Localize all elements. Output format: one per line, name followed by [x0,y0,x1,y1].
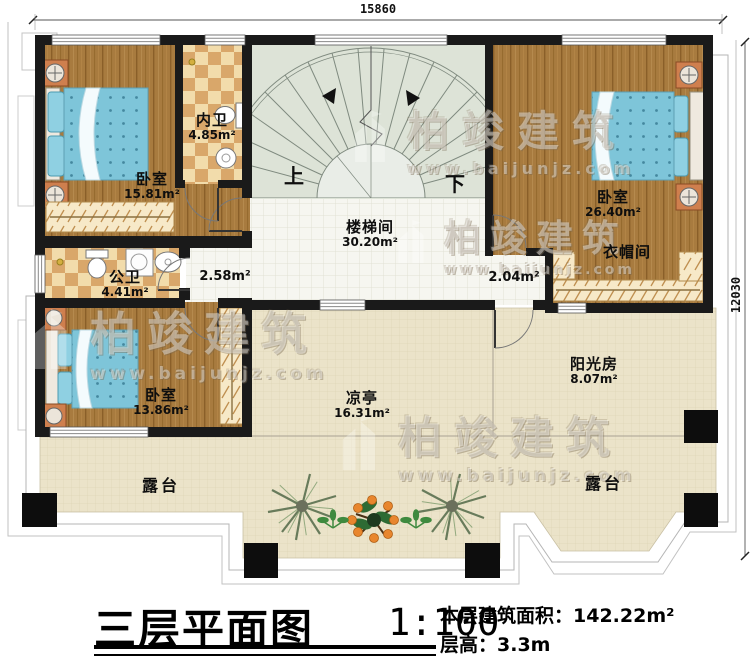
window-icon [50,427,148,437]
room-name: 楼梯间 [342,219,398,236]
room-label-bedroom-bottom-left: 卧室 13.86m² [133,387,189,417]
floor-drain-icon [57,259,63,265]
room-area: 16.31m² [334,407,390,420]
room-name: 露台 [585,475,623,493]
vestibule-area-label: 2.04m² [488,271,539,285]
room-area: 26.40m² [585,206,641,219]
room-name: 卧室 [133,387,189,404]
room-name: 露台 [142,477,180,495]
column [465,543,500,578]
sink-icon [155,252,181,272]
window-icon [558,303,586,313]
floor-drain-icon [189,59,195,65]
floor-height-info: 层高：3.3m [440,630,550,657]
window-icon [52,35,160,45]
room-area: 4.41m² [101,286,148,299]
room-area: 15.81m² [124,188,180,201]
room-area: 4.85m² [188,129,235,142]
room-label-pavilion: 凉亭 16.31m² [334,390,390,420]
window-icon [562,35,666,45]
title-underline [94,645,436,649]
floor-area-value: 142.22m² [573,605,674,627]
room-label-public-bathroom: 公卫 4.41m² [101,269,148,299]
room-label-terrace-right: 露台 [585,475,623,493]
window-icon [320,300,365,310]
room-area: 13.86m² [133,404,189,417]
room-label-cloakroom: 衣帽间 [603,244,651,261]
room-name: 凉亭 [334,390,390,407]
room-label-terrace-left: 露台 [142,477,180,495]
room-label-ensuite-bathroom: 内卫 4.85m² [188,112,235,142]
sink-icon [216,148,236,168]
window-icon [205,35,245,45]
room-name: 公卫 [101,269,148,286]
stair-up-label: 上 [284,165,304,187]
floor-area-info: 本层建筑面积：142.22m² [440,601,674,628]
wardrobe-icon [46,202,174,232]
room-name: 卧室 [124,171,180,188]
room-name: 衣帽间 [603,244,651,261]
room-label-stairwell: 楼梯间 30.20m² [342,219,398,249]
title-underline [94,654,436,656]
column [684,493,718,527]
room-name: 阳光房 [570,356,618,373]
room-name: 内卫 [188,112,235,129]
corridor-area-label: 2.58m² [199,270,250,284]
room-name: 卧室 [585,189,641,206]
floor-height-label: 层高： [440,634,497,656]
column [22,493,57,527]
floor-height-value: 3.3m [497,634,550,656]
dimension-right: 12030 [729,265,743,325]
room-area: 30.20m² [342,236,398,249]
stair-down-label: 下 [445,173,465,195]
column [684,410,718,443]
floor-plan-drawing [0,0,750,600]
window-icon [35,255,45,293]
column [244,543,278,578]
window-icon [315,35,447,45]
room-label-bedroom-top-left: 卧室 15.81m² [124,171,180,201]
room-label-sunroom: 阳光房 8.07m² [570,356,618,386]
room-area: 8.07m² [570,373,618,386]
room-label-bedroom-top-right: 卧室 26.40m² [585,189,641,219]
floor-area-label: 本层建筑面积： [440,605,573,627]
wardrobe-icon [220,308,244,424]
dimension-top: 15860 [330,2,426,16]
floor-plan-page: 柏竣建筑 www.baijunjz.com 柏竣建筑 www.baijunjz.… [0,0,750,664]
